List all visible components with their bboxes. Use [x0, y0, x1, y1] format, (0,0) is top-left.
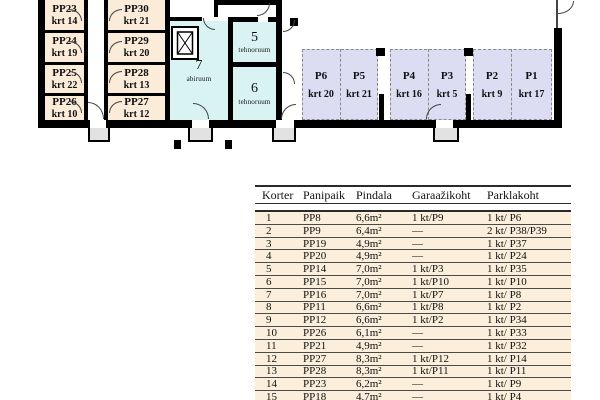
table-cell: 1 kt/ P14 [487, 353, 564, 365]
table-cell: 4 [255, 250, 303, 262]
table-cell: 7,0m² [356, 289, 412, 301]
table-cell: 6,6m² [356, 314, 412, 326]
table-cell: 6,4m² [356, 225, 412, 237]
table-cell: 1 kt/ P32 [487, 340, 564, 352]
table-cell: 15 [255, 391, 303, 400]
table-cell: PP26 [303, 327, 356, 339]
parking-krt-label: krt 5 [437, 89, 458, 100]
table-cell: PP11 [303, 301, 356, 313]
table-cell: PP28 [303, 365, 356, 377]
table-row: 6PP157,0m²1 kt/P101 kt/ P10 [255, 276, 571, 289]
table-cell: 1 kt/ P2 [487, 301, 564, 313]
room-number-label: 7 [196, 58, 203, 74]
table-cell: 1 kt/ P10 [487, 276, 564, 288]
table-row: 3PP194,9m²—1 kt/ P37 [255, 238, 571, 251]
room-krt-label: krt 13 [124, 80, 150, 92]
table-cell: 14 [255, 378, 303, 390]
table-row: 11PP214,9m²—1 kt/ P32 [255, 340, 571, 353]
table-cell: 2 [255, 225, 303, 237]
table-cell: 3 [255, 238, 303, 250]
table-cell: 1 kt/ P35 [487, 263, 564, 275]
table-cell: 8,3m² [356, 365, 412, 377]
wall [453, 120, 562, 128]
table-row: 9PP126,6m²1 kt/P21 kt/ P34 [255, 314, 571, 327]
table-row: 7PP167,0m²1 kt/P71 kt/ P8 [255, 289, 571, 302]
table-cell: — [412, 378, 487, 390]
floor-plan: PP23 krt 14 PP24 krt 19 PP25 krt 22 PP26… [0, 0, 600, 160]
door-arc [558, 1, 574, 14]
table-cell: PP23 [303, 378, 356, 390]
room-krt-label: krt 12 [124, 109, 150, 121]
table-cell: 1 kt/ P8 [487, 289, 564, 301]
table-cell: 1 kt/ P37 [487, 238, 564, 250]
parking-name-label: P3 [441, 70, 453, 82]
wall [168, 17, 202, 21]
table-cell: 1 kt/P10 [412, 276, 487, 288]
table-cell: — [412, 340, 487, 352]
table-cell: 1 kt/ P6 [487, 212, 564, 224]
table-cell: 8,3m² [356, 353, 412, 365]
column-header-parklakoht: Parklakoht [487, 188, 564, 203]
table-row: 1PP86,6m²1 kt/P91 kt/ P6 [255, 212, 571, 225]
room-krt-label: krt 21 [124, 16, 150, 28]
parking-krt-label: krt 20 [308, 89, 334, 100]
parking-spot-p4: P4 krt 16 [390, 49, 428, 120]
pillar [376, 48, 385, 56]
column-header-korter: Korter [255, 188, 303, 203]
wall [379, 94, 384, 120]
table-cell: — [412, 391, 487, 400]
table-row: 8PP116,6m²1 kt/P81 kt/ P2 [255, 302, 571, 315]
table-cell: PP16 [303, 289, 356, 301]
table-cell: 1 kt/ P24 [487, 250, 564, 262]
parking-name-label: P2 [486, 70, 498, 82]
parking-krt-label: krt 16 [396, 89, 422, 100]
table-cell: PP8 [303, 212, 356, 224]
table-cell: 11 [255, 340, 303, 352]
table-cell: 4,7m² [356, 391, 412, 400]
room-5-tehnoruum: 5 tehnoruum [233, 22, 276, 62]
wall [228, 17, 233, 120]
table-cell: — [412, 225, 487, 237]
table-cell: 9 [255, 314, 303, 326]
room-number-label: 6 [251, 81, 258, 97]
column-header-garaazikoht: Garaažikoht [412, 188, 487, 203]
table-cell: PP14 [303, 263, 356, 275]
door-arc [281, 104, 296, 119]
table-cell: 6,6m² [356, 212, 412, 224]
table-cell: PP27 [303, 353, 356, 365]
entrance-step [188, 128, 213, 142]
page: PP23 krt 14 PP24 krt 19 PP25 krt 22 PP26… [0, 0, 600, 400]
wall [38, 93, 88, 96]
table-cell: PP21 [303, 340, 356, 352]
elevator-icon [171, 26, 199, 60]
wall [268, 17, 276, 22]
table-cell: 1 kt/P8 [412, 301, 487, 313]
table-row: 2PP96,4m²—2 kt/ P38/P39 [255, 225, 571, 238]
table-row: 15PP184,7m²—1 kt/ P4 [255, 391, 571, 400]
table-cell: 1 kt/P7 [412, 289, 487, 301]
door-arc [257, 3, 270, 16]
table-body: 1PP86,6m²1 kt/P91 kt/ P62PP96,4m²—2 kt/ … [255, 210, 571, 400]
parking-spot-p6: P6 krt 20 [302, 49, 340, 120]
table-row: 13PP288,3m²1 kt/P111 kt/ P11 [255, 366, 571, 379]
parking-krt-label: krt 21 [346, 89, 372, 100]
table-cell: PP18 [303, 391, 356, 400]
table-cell: 1 kt/ P4 [487, 391, 564, 400]
table-cell: 1 kt/P3 [412, 263, 487, 275]
room-name-label: PP29 [124, 35, 148, 48]
wall [38, 30, 88, 33]
parking-krt-label: krt 9 [482, 89, 503, 100]
wall [294, 120, 436, 128]
room-name-label: PP30 [124, 3, 148, 16]
table-cell: 2 kt/ P38/P39 [487, 225, 564, 237]
table-row: 4PP204,9m²—1 kt/ P24 [255, 250, 571, 263]
parking-name-label: P4 [403, 70, 415, 82]
table-cell: 4,9m² [356, 250, 412, 262]
wall [104, 62, 170, 65]
table-cell: 7,0m² [356, 276, 412, 288]
table-cell: 1 kt/P2 [412, 314, 487, 326]
wall [38, 120, 90, 128]
parking-krt-label: krt 17 [519, 89, 545, 100]
table-cell: PP15 [303, 276, 356, 288]
table-cell: 4,9m² [356, 340, 412, 352]
table-row: 12PP278,3m²1 kt/P121 kt/ P14 [255, 353, 571, 366]
wall [276, 0, 282, 120]
parking-spot-p5: P5 krt 21 [340, 49, 378, 120]
table-cell: 6 [255, 276, 303, 288]
table-cell: PP20 [303, 250, 356, 262]
table-cell: 1 kt/ P9 [487, 378, 564, 390]
table-row: 5PP147,0m²1 kt/P31 kt/ P35 [255, 263, 571, 276]
wall [466, 94, 471, 120]
door-arc [283, 20, 295, 32]
table-cell: 4,9m² [356, 238, 412, 250]
table-cell: 1 kt/P9 [412, 212, 487, 224]
table-cell: 10 [255, 327, 303, 339]
table-cell: — [412, 327, 487, 339]
wall [104, 30, 170, 33]
table-cell: 12 [255, 353, 303, 365]
table-row: 14PP236,2m²—1 kt/ P9 [255, 378, 571, 391]
room-number-label: 5 [251, 30, 258, 46]
entrance-step [88, 128, 110, 142]
wall [104, 0, 108, 120]
pillar [464, 48, 473, 56]
table-cell: 7 [255, 289, 303, 301]
wall [38, 62, 88, 65]
pillar [225, 140, 232, 149]
wall [233, 62, 276, 67]
room-krt-label: krt 20 [124, 48, 150, 60]
allocation-table: Korter Panipaik Pindala Garaažikoht Park… [255, 185, 571, 400]
room-type-label: abiruum [187, 75, 212, 83]
table-cell: 1 kt/P12 [412, 353, 487, 365]
table-cell: 1 kt/ P33 [487, 327, 564, 339]
table-cell: 8 [255, 301, 303, 313]
table-row: 10PP266,1m²—1 kt/ P33 [255, 327, 571, 340]
parking-name-label: P1 [525, 70, 537, 82]
room-type-label: tehnoruum [238, 46, 270, 54]
table-cell: 1 kt/ P34 [487, 314, 564, 326]
table-cell: PP19 [303, 238, 356, 250]
table-cell: 6,6m² [356, 301, 412, 313]
parking-spot-p1: P1 krt 17 [511, 49, 552, 120]
table-cell: 1 kt/P11 [412, 365, 487, 377]
room-name-label: PP28 [124, 67, 148, 80]
table-cell: 1 [255, 212, 303, 224]
parking-name-label: P5 [353, 70, 365, 82]
table-header: Korter Panipaik Pindala Garaažikoht Park… [255, 185, 571, 204]
wall [104, 93, 170, 96]
door-arc [283, 72, 295, 84]
table-cell: 5 [255, 263, 303, 275]
table-cell: — [412, 238, 487, 250]
wall [209, 120, 276, 128]
table-cell: — [412, 250, 487, 262]
room-name-label: PP27 [124, 96, 148, 109]
door-arc [88, 102, 104, 119]
table-cell: 6,2m² [356, 378, 412, 390]
room-type-label: tehnoruum [238, 98, 270, 106]
pillar [174, 140, 181, 149]
entrance-step [433, 128, 459, 142]
wall [554, 28, 562, 128]
entrance-step [272, 128, 296, 142]
table-cell: PP9 [303, 225, 356, 237]
parking-name-label: P6 [315, 70, 327, 82]
column-header-pindala: Pindala [356, 188, 412, 203]
wall [106, 120, 192, 128]
parking-spot-p2: P2 krt 9 [473, 49, 511, 120]
column-header-panipaik: Panipaik [303, 188, 356, 203]
table-cell: 6,1m² [356, 327, 412, 339]
table-cell: PP12 [303, 314, 356, 326]
room-6-tehnoruum: 6 tehnoruum [233, 67, 276, 120]
table-cell: 1 kt/ P11 [487, 365, 564, 377]
table-cell: 7,0m² [356, 263, 412, 275]
table-cell: 13 [255, 365, 303, 377]
wall [228, 17, 258, 22]
